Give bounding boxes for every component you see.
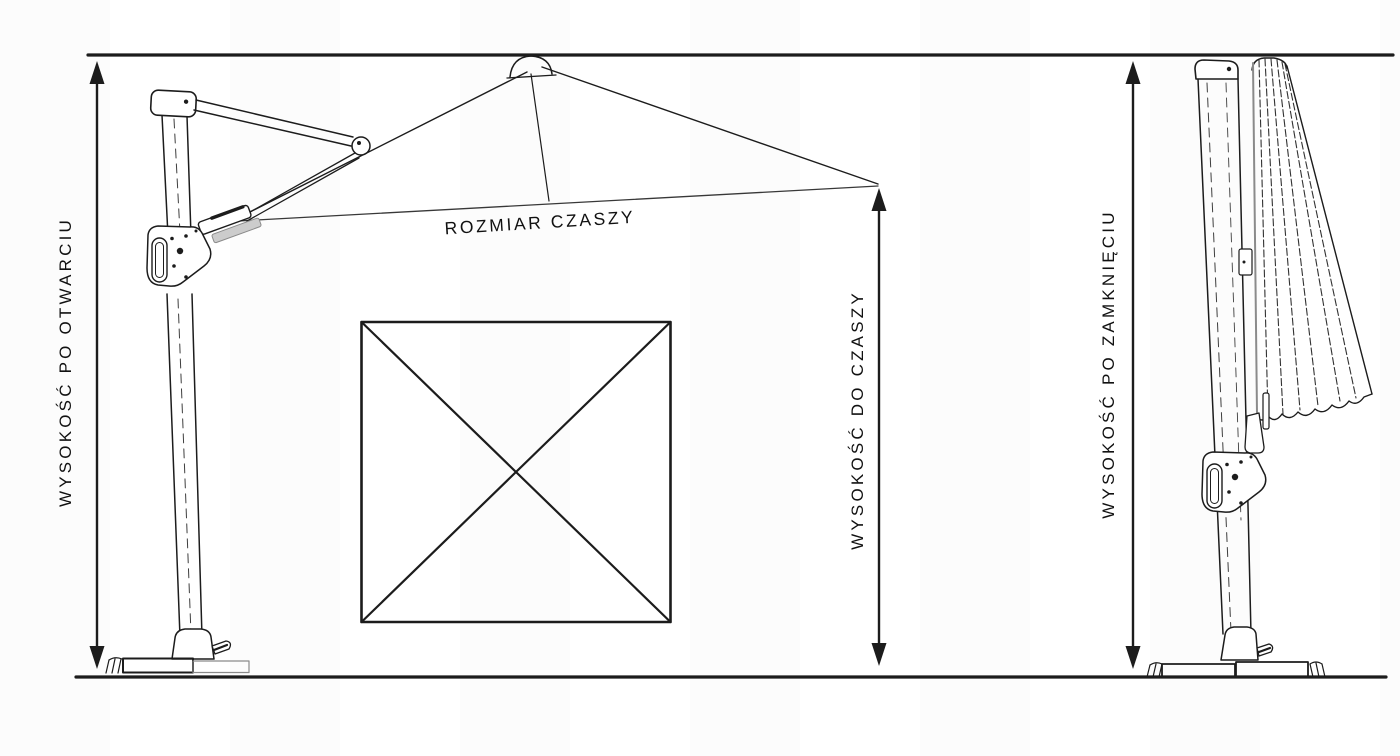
dimension-arrow-closed-height <box>1126 61 1141 669</box>
label-height-open: WYSOKOŚĆ PO OTWARCIU <box>56 217 76 507</box>
dimension-arrow-canopy-height <box>872 188 887 666</box>
tilt-mechanism <box>198 203 262 247</box>
closed-pole-cap <box>1195 60 1238 79</box>
label-height-to-canopy: WYSOKOŚĆ DO CZASZY <box>848 290 868 550</box>
label-height-closed: WYSOKOŚĆ PO ZAMKNIĘCIU <box>1099 209 1119 518</box>
canopy-wavy-hem <box>1256 394 1372 420</box>
base-plate <box>106 658 249 673</box>
pole-runner <box>1239 249 1252 275</box>
folded-canopy <box>1252 58 1372 420</box>
open-umbrella-drawing <box>106 56 878 673</box>
canopy-size-square <box>362 322 671 622</box>
closed-hub-bracket <box>1202 452 1266 512</box>
umbrella-pole-lower <box>167 294 202 637</box>
closed-pole <box>1198 79 1251 634</box>
umbrella-pole-upper <box>162 115 191 236</box>
closed-pole-foot <box>1221 627 1273 660</box>
pole-foot <box>172 629 230 659</box>
open-canopy <box>236 56 878 221</box>
cantilever-arm <box>194 100 370 221</box>
dimension-arrow-open-height <box>90 61 105 669</box>
closed-base-plate <box>1147 662 1325 677</box>
umbrella-dimension-diagram: WYSOKOŚĆ PO OTWARCIU ROZMIAR CZASZY WYSO… <box>0 0 1400 756</box>
closed-umbrella-drawing <box>1147 58 1372 677</box>
hub-bracket <box>147 226 211 286</box>
diagram-line-art <box>0 0 1400 756</box>
pole-top-cap <box>150 90 196 117</box>
